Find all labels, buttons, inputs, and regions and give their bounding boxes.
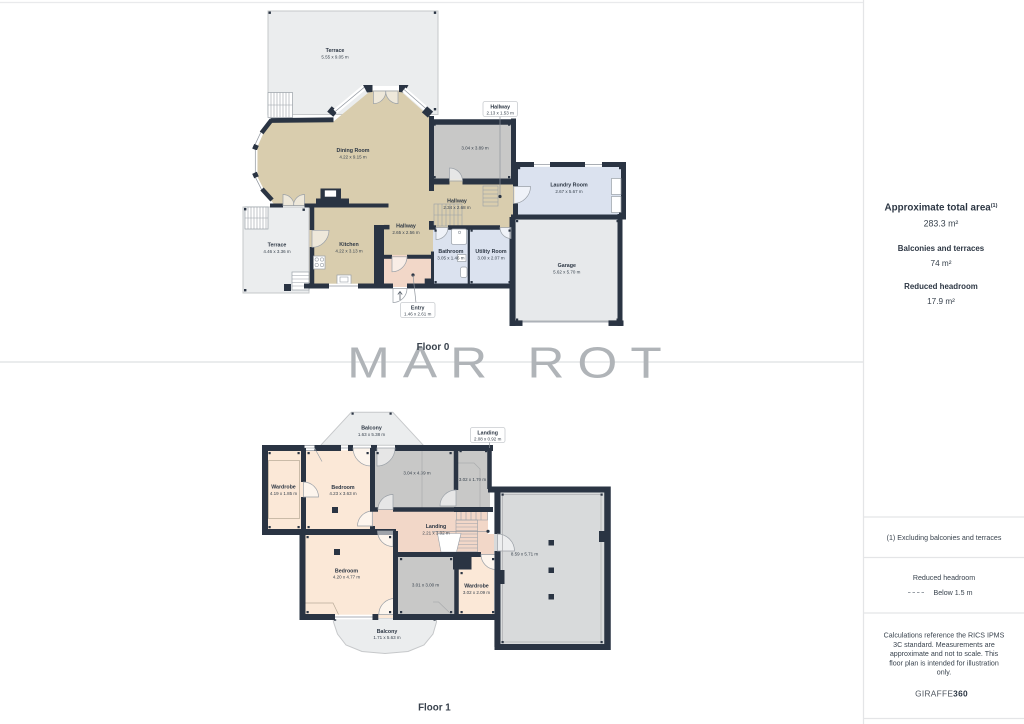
svg-text:74 m²: 74 m²: [931, 259, 952, 268]
svg-text:3.00 x 2.07 m: 3.00 x 2.07 m: [477, 256, 505, 261]
svg-text:Reduced headroom: Reduced headroom: [913, 574, 975, 582]
svg-text:Balcony: Balcony: [361, 426, 382, 432]
svg-text:5.62 x 5.70 m: 5.62 x 5.70 m: [553, 270, 581, 275]
svg-text:Calculations reference the RIC: Calculations reference the RICS IPMS: [884, 632, 1005, 640]
svg-text:Hallway: Hallway: [396, 224, 416, 230]
svg-text:Balconies and terraces: Balconies and terraces: [898, 244, 985, 253]
svg-text:4.20 x 4.77 m: 4.20 x 4.77 m: [333, 574, 361, 579]
svg-text:4.46 x 3.36 m: 4.46 x 3.36 m: [263, 249, 291, 254]
svg-text:17.9 m²: 17.9 m²: [927, 297, 955, 306]
svg-text:GIRAFFE360: GIRAFFE360: [915, 689, 968, 699]
svg-text:Utility Room: Utility Room: [475, 249, 506, 255]
svg-text:1.71 x 5.63 m: 1.71 x 5.63 m: [373, 635, 401, 640]
svg-text:Approximate total area(1): Approximate total area(1): [885, 203, 998, 214]
svg-text:3.04 x 4.39 m: 3.04 x 4.39 m: [403, 471, 431, 476]
svg-text:3.02 x 2.09 m: 3.02 x 2.09 m: [463, 590, 491, 595]
svg-text:5.55 x 9.05 m: 5.55 x 9.05 m: [321, 55, 349, 60]
svg-text:4.23 x 3.63 m: 4.23 x 3.63 m: [329, 491, 357, 496]
svg-text:Terrace: Terrace: [326, 48, 345, 54]
svg-text:only.: only.: [937, 669, 951, 677]
svg-text:Floor 0: Floor 0: [417, 342, 450, 353]
svg-text:(1) Excluding balconies and te: (1) Excluding balconies and terraces: [887, 534, 1002, 542]
svg-text:3.02 x 1.70 m: 3.02 x 1.70 m: [459, 477, 487, 482]
svg-text:2.08 x 0.92 m: 2.08 x 0.92 m: [474, 437, 502, 442]
svg-text:Reduced headroom: Reduced headroom: [904, 282, 978, 291]
svg-text:4.22 x 3.13 m: 4.22 x 3.13 m: [335, 249, 363, 254]
svg-text:Wardrobe: Wardrobe: [271, 485, 296, 491]
svg-text:Bathroom: Bathroom: [438, 249, 463, 255]
svg-text:1.46 x 2.61 m: 1.46 x 2.61 m: [404, 312, 432, 317]
svg-text:Laundry Room: Laundry Room: [550, 183, 588, 189]
svg-text:Hallway: Hallway: [447, 199, 467, 205]
svg-text:Floor 1: Floor 1: [418, 703, 451, 714]
svg-text:floor plan is intended for ill: floor plan is intended for illustration: [889, 659, 999, 667]
svg-text:3.04 x 3.89 m: 3.04 x 3.89 m: [461, 146, 489, 151]
svg-text:1.63 x 5.38 m: 1.63 x 5.38 m: [358, 432, 386, 437]
svg-text:approximate and not to scale.: approximate and not to scale. This: [890, 650, 999, 658]
svg-text:3.01 x 3.00 m: 3.01 x 3.00 m: [412, 583, 440, 588]
svg-text:Below 1.5 m: Below 1.5 m: [933, 589, 972, 597]
svg-text:8.59 x 5.71 m: 8.59 x 5.71 m: [511, 552, 539, 557]
svg-text:Garage: Garage: [558, 263, 576, 269]
svg-text:Terrace: Terrace: [268, 243, 287, 249]
svg-text:Kitchen: Kitchen: [339, 242, 358, 248]
svg-text:4.19 x 1.85 m: 4.19 x 1.85 m: [270, 491, 298, 496]
svg-text:Dining Room: Dining Room: [337, 148, 370, 154]
svg-text:3.05 x 1.46 m: 3.05 x 1.46 m: [437, 256, 465, 261]
svg-text:Wardrobe: Wardrobe: [464, 584, 489, 590]
svg-text:Landing: Landing: [426, 524, 447, 530]
svg-text:2.67 x 5.67 m: 2.67 x 5.67 m: [555, 189, 583, 194]
svg-text:2.34 x 2.68 m: 2.34 x 2.68 m: [443, 205, 471, 210]
svg-text:3C standard. Measurements are: 3C standard. Measurements are: [893, 641, 995, 649]
svg-text:4.22 x 9.15 m: 4.22 x 9.15 m: [339, 155, 367, 160]
svg-text:2.13 x 1.53 m: 2.13 x 1.53 m: [487, 111, 515, 116]
svg-text:2.65 x 2.56 m: 2.65 x 2.56 m: [392, 230, 420, 235]
svg-text:283.3 m²: 283.3 m²: [924, 219, 959, 229]
svg-text:MAR ROT: MAR ROT: [347, 339, 674, 387]
